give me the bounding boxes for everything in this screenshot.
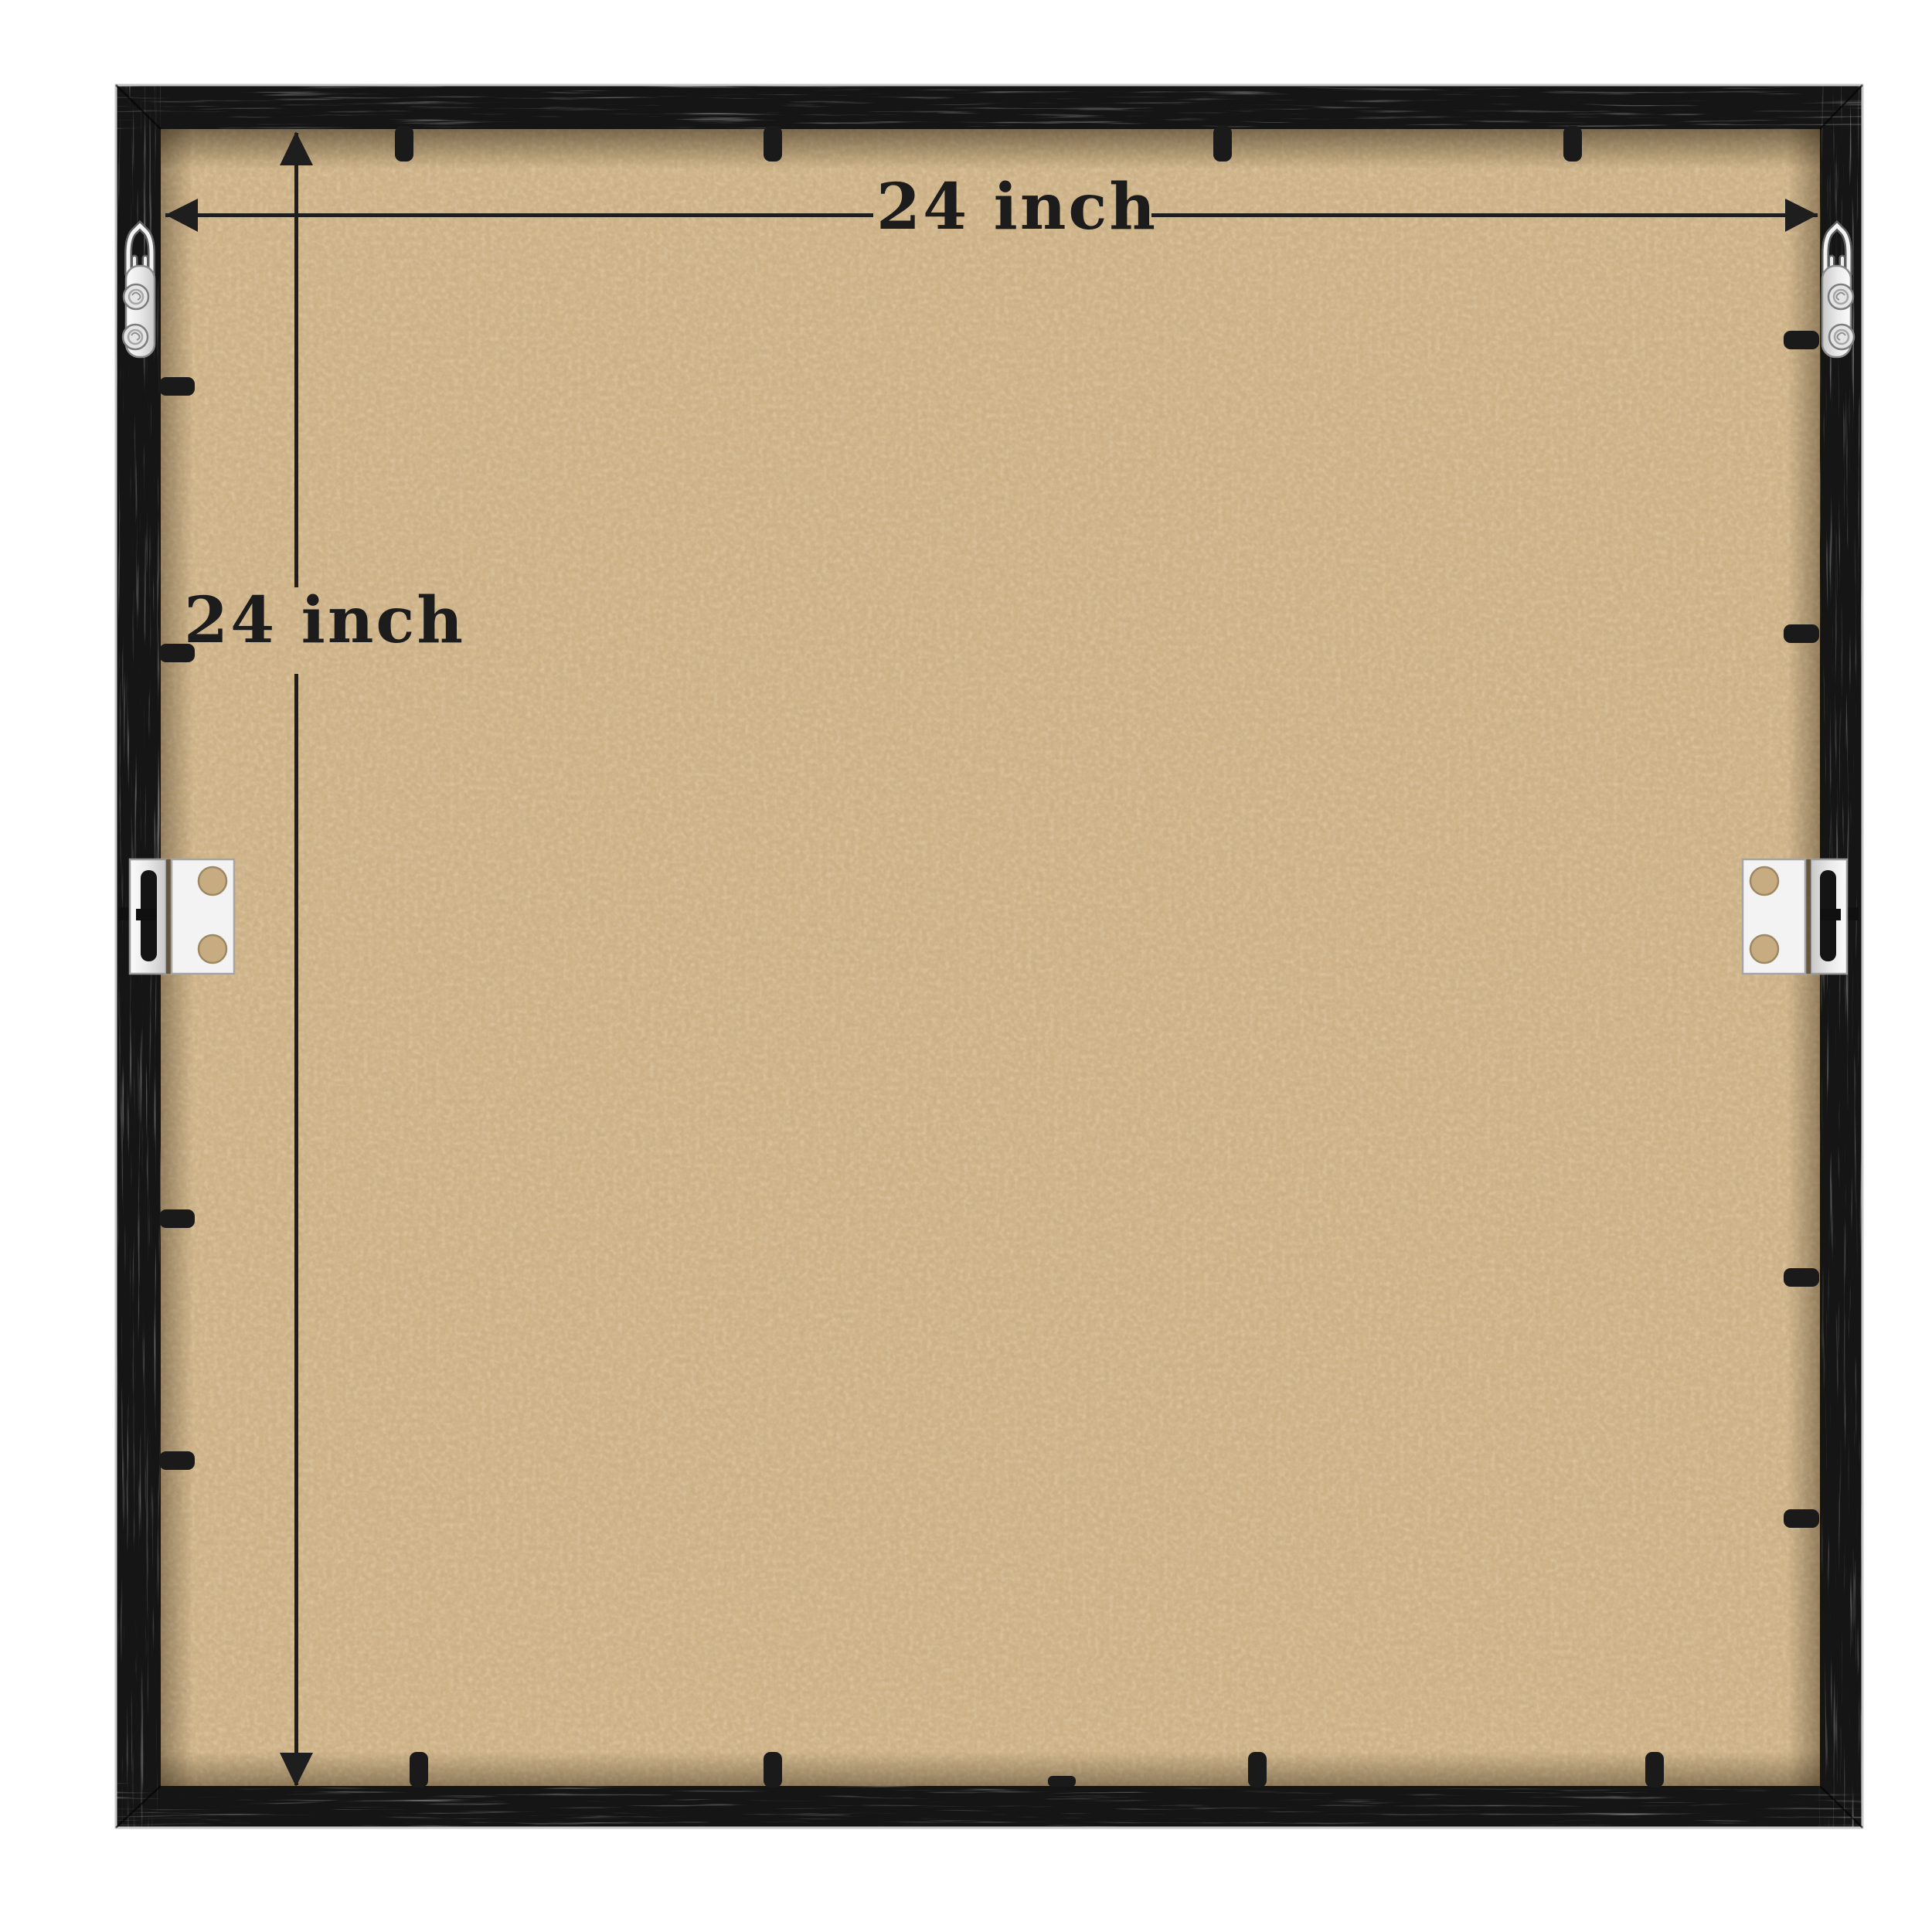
retainer-tab — [1563, 126, 1582, 162]
height-dimension-line — [294, 133, 298, 587]
bracket-hole — [1750, 935, 1778, 963]
retainer-tab — [1213, 126, 1232, 162]
mdf-backing-board — [161, 129, 1820, 1786]
screw — [124, 284, 148, 309]
retainer-tab — [1784, 331, 1819, 349]
side-bracket-right — [1743, 859, 1859, 974]
retainer-tab — [1784, 1509, 1819, 1528]
retainer-tab — [159, 377, 195, 396]
side-bracket-left — [118, 859, 234, 974]
retainer-tab — [1784, 1268, 1819, 1287]
retainer-tab — [159, 1451, 195, 1470]
screw — [1829, 325, 1854, 349]
retainer-tab — [410, 1752, 428, 1787]
frame-grain-bottom — [116, 1783, 1862, 1828]
retainer-tab — [159, 1209, 195, 1228]
height-dimension-line — [294, 674, 298, 1785]
retainer-tab — [1645, 1752, 1664, 1787]
width-dimension-line — [165, 213, 873, 217]
bracket-hole — [1750, 867, 1778, 895]
retainer-tab — [1248, 1752, 1267, 1787]
width-dimension-label: 24 inch — [876, 170, 1158, 244]
width-dimension-line — [1151, 213, 1818, 217]
height-dimension-label: 24 inch — [184, 583, 465, 658]
retainer-tab — [764, 1752, 782, 1787]
bracket-hole — [199, 935, 226, 963]
retainer-tab-nub — [1048, 1776, 1076, 1787]
retainer-tab — [395, 126, 413, 162]
retainer-tab — [1784, 624, 1819, 643]
frame-back-illustration — [0, 0, 1932, 1932]
frame-grain-top — [116, 85, 1862, 130]
product-photo-canvas: 24 inch 24 inch — [0, 0, 1932, 1932]
screw — [123, 325, 148, 349]
screw — [1828, 284, 1853, 309]
retainer-tab — [764, 126, 782, 162]
bracket-hole — [199, 867, 226, 895]
